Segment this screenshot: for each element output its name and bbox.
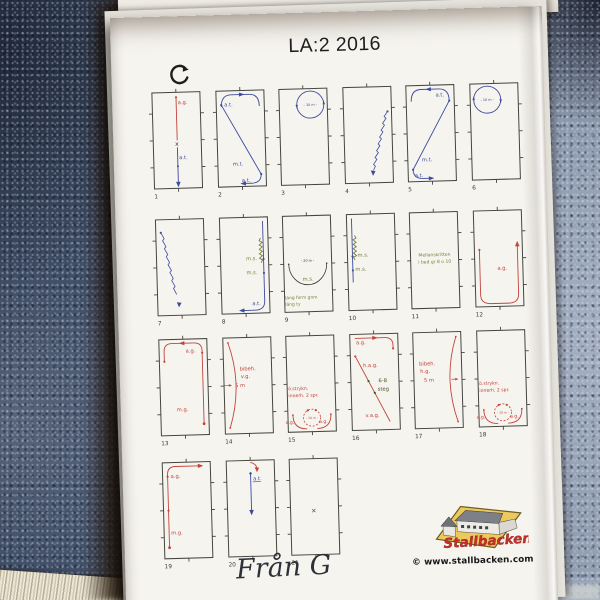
movement-number: 3 bbox=[281, 191, 285, 197]
movement-box: 4 bbox=[337, 82, 398, 197]
movement-label: a.g. bbox=[286, 421, 295, 426]
movement-label: 6-8 bbox=[378, 378, 387, 384]
movement-label: - 10 m - bbox=[304, 103, 318, 107]
movement-box: Mellanskritteni bed gr 8 o 1011 bbox=[404, 207, 465, 322]
movement-label: steg bbox=[377, 387, 388, 393]
movement-label: m.g. bbox=[177, 407, 189, 413]
movement-box: - 20 m -m.s.läng form gnmläng ty9 bbox=[277, 211, 338, 326]
movement-label: m.t. bbox=[232, 161, 243, 167]
movement-label: - 10 m - bbox=[480, 98, 494, 102]
movement-label: a.g. bbox=[497, 266, 507, 272]
movement-number: 11 bbox=[412, 314, 420, 320]
movement-box: - 10 m -6 bbox=[464, 79, 525, 194]
movement-label: a.g. bbox=[178, 100, 188, 106]
movement-box: a.g.m.g.13 bbox=[154, 334, 215, 449]
movement-label: h.g. bbox=[420, 369, 430, 375]
movement-box: ö.strykn.innerh. 2 spr.a.g.a.g.- 10 m -1… bbox=[281, 331, 342, 446]
movement-label: bibeh. bbox=[419, 361, 436, 367]
movement-number: 16 bbox=[352, 436, 360, 442]
movement-label: m.s. bbox=[355, 267, 367, 273]
movement-number: 5 bbox=[408, 187, 412, 193]
movement-label: a.t. bbox=[252, 301, 261, 307]
movement-number: 15 bbox=[288, 438, 296, 444]
movement-number: 13 bbox=[161, 441, 169, 447]
movement-label: a.g. bbox=[476, 415, 485, 420]
movement-label: läng form gnm bbox=[285, 294, 318, 301]
movement-number: 18 bbox=[478, 432, 486, 438]
movement-number: 10 bbox=[348, 316, 356, 322]
movement-box: bibeh.h.g.5 m17 bbox=[408, 327, 469, 442]
movement-label: - 10 m - bbox=[306, 416, 318, 420]
movement-label: m.t. bbox=[422, 157, 433, 163]
test-sheet: LA:2 2016 a.g.a.t.x1a.t.m.t.a.t.2- 10 m … bbox=[110, 6, 558, 600]
stallbacken-logo: Stallbacken bbox=[429, 496, 529, 557]
movement-label: ö.strykn. bbox=[479, 380, 499, 387]
movement-number: 1 bbox=[154, 194, 158, 200]
movement-label: a.t. bbox=[415, 173, 424, 179]
movement-label: a.g. bbox=[171, 474, 181, 480]
movement-label: a.t. bbox=[241, 178, 250, 184]
movement-label: Mellanskritten bbox=[418, 252, 450, 259]
movement-box: bibeh.v.g.5 m14 bbox=[217, 333, 278, 448]
movement-label: innerh. 2 spr. bbox=[288, 392, 318, 399]
movement-label: bibeh. bbox=[239, 366, 256, 372]
movement-number: 17 bbox=[415, 434, 423, 440]
movement-label: a.t. bbox=[253, 476, 262, 482]
movement-number: 8 bbox=[221, 320, 225, 326]
movement-label: 5 m bbox=[424, 378, 434, 384]
movement-box: a.t.m.t.a.t.2 bbox=[210, 86, 271, 201]
movement-label: ö.strykn. bbox=[288, 386, 308, 393]
movement-number: 2 bbox=[218, 193, 222, 199]
movement-number: 12 bbox=[475, 312, 483, 318]
movement-box: a.t.m.t.a.t.5 bbox=[401, 80, 462, 195]
movement-label: - 20 m - bbox=[301, 259, 315, 263]
movement-label: h.a.g. bbox=[362, 363, 377, 369]
movement-box: a.g.h.a.g.6-8stegv.a.g.16 bbox=[344, 329, 405, 444]
movement-label: m.g. bbox=[171, 530, 183, 536]
movement-number: 19 bbox=[165, 564, 173, 570]
movement-number: 6 bbox=[472, 185, 476, 191]
photo-of-dressage-test-sheet: a.t.f LA:2 2016 a.g.a.t.x1a.t.m.t.a.t.2-… bbox=[0, 0, 600, 600]
movement-label: i bed gr 8 o 10 bbox=[418, 259, 451, 266]
movement-number: 20 bbox=[228, 562, 236, 568]
movement-label: - 10 m - bbox=[496, 410, 508, 414]
movement-label: a.g. bbox=[355, 340, 365, 346]
movement-label: v.a.g. bbox=[365, 413, 380, 419]
movement-label: × bbox=[311, 507, 317, 515]
movement-label: 5 m bbox=[235, 383, 245, 389]
movement-label: m.s. bbox=[357, 253, 369, 259]
movement-label: x bbox=[175, 141, 179, 148]
movement-box: ö.strykn.innerh. 2 spr.a.g.a.g.- 10 m -1… bbox=[471, 326, 532, 441]
movement-label: a.g. bbox=[186, 348, 196, 354]
movement-number: 7 bbox=[158, 321, 162, 327]
movement-label: a.g. bbox=[319, 420, 328, 425]
movement-label: a.t. bbox=[224, 102, 233, 108]
movement-box: a.g.12 bbox=[468, 206, 529, 321]
movement-box: a.g.m.g.19 bbox=[157, 457, 218, 572]
movement-box: a.g.a.t.x1 bbox=[147, 88, 208, 203]
movement-label: m.s. bbox=[303, 277, 315, 283]
movement-label: m.s. bbox=[246, 270, 258, 276]
movement-box: 7 bbox=[150, 214, 211, 329]
movement-label: m.s. bbox=[245, 256, 257, 262]
movement-box: m.s.m.s.10 bbox=[341, 209, 402, 324]
movement-number: 9 bbox=[285, 318, 289, 324]
movement-label: v.g. bbox=[240, 374, 250, 380]
movement-number: 4 bbox=[345, 189, 349, 195]
movement-label: läng ty bbox=[285, 301, 301, 307]
movement-label: innerh. 2 spr. bbox=[479, 387, 509, 394]
movement-label: a.g. bbox=[509, 414, 518, 419]
movement-label: a.t. bbox=[435, 92, 444, 98]
movement-box: m.s.m.s.a.t.8 bbox=[214, 213, 275, 328]
movement-label: a.t. bbox=[179, 155, 188, 161]
movement-box: - 10 m -3 bbox=[274, 84, 335, 199]
movement-number: 14 bbox=[225, 439, 233, 445]
handwritten-note: Från G bbox=[235, 550, 332, 586]
